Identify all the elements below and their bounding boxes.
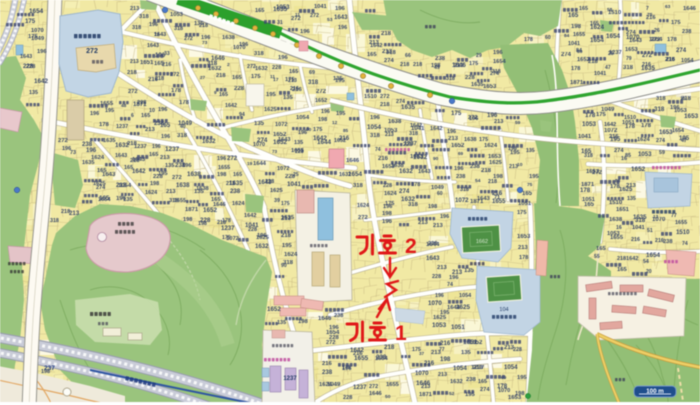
svg-text:1646: 1646	[318, 316, 332, 322]
svg-text:228: 228	[248, 227, 257, 233]
svg-text:175: 175	[517, 210, 527, 216]
svg-text:213: 213	[69, 210, 80, 217]
svg-text:213: 213	[433, 223, 444, 229]
svg-text:1053: 1053	[607, 231, 620, 237]
svg-text:165: 165	[97, 168, 107, 174]
svg-text:228: 228	[403, 142, 413, 148]
svg-text:238: 238	[663, 239, 673, 245]
svg-text:272: 272	[380, 94, 390, 100]
svg-text:178: 178	[524, 37, 533, 43]
svg-text:178: 178	[625, 124, 636, 130]
svg-text:1041: 1041	[287, 181, 302, 188]
svg-text:1053: 1053	[276, 4, 290, 11]
svg-text:318: 318	[139, 14, 149, 20]
svg-text:1041: 1041	[632, 225, 645, 231]
svg-text:198: 198	[428, 204, 437, 210]
svg-text:175: 175	[596, 112, 607, 118]
svg-text:272: 272	[172, 175, 182, 181]
svg-text:52: 52	[449, 391, 455, 397]
svg-text:178: 178	[171, 88, 182, 94]
svg-text:198: 198	[183, 217, 192, 223]
svg-text:228: 228	[272, 65, 281, 71]
svg-text:77: 77	[439, 347, 445, 353]
svg-text:49: 49	[434, 65, 440, 71]
svg-text:238: 238	[175, 162, 186, 169]
svg-text:218: 218	[216, 73, 226, 79]
svg-text:1635: 1635	[401, 104, 416, 111]
svg-text:1871: 1871	[419, 392, 433, 398]
svg-text:1651: 1651	[140, 60, 154, 66]
svg-text:274: 274	[384, 58, 394, 64]
svg-text:195: 195	[529, 174, 540, 180]
svg-text:165: 165	[617, 267, 628, 273]
svg-text:55: 55	[594, 254, 600, 260]
svg-text:1653: 1653	[488, 154, 502, 160]
svg-text:165: 165	[289, 69, 298, 75]
svg-text:216: 216	[353, 351, 363, 357]
svg-text:175: 175	[25, 18, 36, 25]
svg-text:1652: 1652	[203, 207, 218, 214]
svg-text:175: 175	[451, 110, 462, 117]
svg-text:165: 165	[99, 195, 110, 202]
svg-text:1638: 1638	[176, 182, 190, 189]
svg-text:1072: 1072	[604, 128, 618, 134]
svg-text:10: 10	[517, 162, 523, 168]
svg-text:196: 196	[321, 109, 330, 115]
svg-text:196: 196	[37, 49, 47, 55]
svg-text:1654: 1654	[672, 128, 684, 134]
svg-text:228: 228	[23, 63, 34, 70]
svg-text:1041: 1041	[594, 71, 606, 77]
svg-text:165: 165	[522, 191, 533, 197]
svg-text:272: 272	[358, 215, 368, 221]
svg-text:228: 228	[513, 347, 522, 353]
svg-text:196: 196	[335, 6, 346, 12]
svg-text:178: 178	[179, 100, 190, 106]
svg-text:175: 175	[281, 201, 290, 207]
svg-text:1652: 1652	[267, 306, 281, 313]
svg-text:1632: 1632	[255, 66, 268, 72]
svg-text:196: 196	[447, 129, 456, 135]
svg-text:238: 238	[456, 174, 465, 180]
svg-text:1041: 1041	[568, 41, 580, 47]
svg-text:165: 165	[579, 6, 588, 12]
svg-text:1632: 1632	[401, 196, 416, 203]
svg-text:2: 2	[405, 235, 417, 258]
svg-text:196: 196	[161, 134, 170, 140]
svg-text:218: 218	[384, 344, 395, 351]
svg-text:1632: 1632	[339, 172, 351, 178]
svg-text:1632: 1632	[255, 243, 269, 250]
svg-text:1652: 1652	[451, 143, 465, 149]
svg-text:165: 165	[568, 12, 579, 19]
svg-text:272: 272	[468, 115, 478, 121]
svg-text:1642: 1642	[225, 103, 237, 109]
svg-text:1646: 1646	[346, 158, 360, 164]
svg-text:47: 47	[605, 65, 611, 71]
svg-text:1643: 1643	[418, 169, 431, 175]
svg-text:135: 135	[461, 350, 472, 356]
svg-text:228: 228	[465, 75, 475, 81]
svg-text:1654: 1654	[493, 59, 506, 65]
svg-text:196: 196	[493, 50, 503, 56]
svg-text:272: 272	[310, 13, 319, 19]
svg-text:272: 272	[184, 36, 193, 42]
svg-text:1644: 1644	[253, 161, 267, 167]
svg-text:218: 218	[413, 62, 422, 68]
svg-text:1624: 1624	[284, 252, 298, 258]
svg-text:198: 198	[217, 172, 226, 178]
svg-text:318: 318	[656, 96, 666, 102]
svg-text:165: 165	[219, 92, 228, 98]
svg-text:1072: 1072	[277, 166, 289, 172]
svg-text:1655: 1655	[386, 382, 400, 388]
svg-text:27: 27	[200, 75, 206, 80]
svg-text:84: 84	[564, 33, 570, 38]
svg-text:1654: 1654	[606, 33, 621, 40]
svg-text:272: 272	[651, 37, 660, 43]
svg-text:31: 31	[277, 20, 283, 26]
svg-text:1070: 1070	[233, 45, 245, 51]
svg-text:1653: 1653	[625, 47, 638, 53]
svg-text:1054: 1054	[296, 115, 310, 121]
svg-text:175: 175	[385, 201, 394, 207]
svg-text:1871: 1871	[470, 199, 484, 205]
svg-text:318: 318	[370, 133, 380, 139]
svg-text:274: 274	[676, 47, 687, 54]
svg-text:1643: 1643	[426, 255, 440, 262]
svg-text:1054: 1054	[453, 365, 467, 372]
svg-text:2: 2	[227, 62, 230, 68]
svg-text:272: 272	[86, 48, 98, 55]
svg-text:1237: 1237	[116, 124, 128, 130]
svg-text:272: 272	[247, 64, 256, 70]
svg-text:228: 228	[343, 395, 352, 401]
svg-text:135: 135	[194, 189, 205, 195]
svg-text:178: 178	[580, 187, 591, 194]
svg-text:1871: 1871	[570, 80, 584, 86]
svg-text:1510: 1510	[609, 200, 623, 206]
svg-text:1510: 1510	[608, 10, 622, 16]
svg-text:77: 77	[671, 213, 677, 219]
svg-text:175: 175	[313, 127, 322, 133]
svg-text:175: 175	[671, 20, 681, 26]
svg-text:1635: 1635	[281, 215, 295, 221]
svg-text:1624: 1624	[384, 191, 397, 197]
svg-text:218: 218	[617, 256, 626, 262]
svg-text:198: 198	[493, 174, 504, 180]
svg-text:1632: 1632	[450, 379, 463, 385]
svg-text:218: 218	[127, 70, 137, 76]
svg-text:165: 165	[478, 379, 487, 385]
svg-text:1054: 1054	[459, 293, 472, 299]
svg-text:318: 318	[174, 26, 183, 32]
svg-text:216: 216	[665, 57, 676, 63]
svg-text:1652: 1652	[631, 166, 646, 173]
svg-text:26: 26	[654, 28, 660, 34]
svg-text:1638: 1638	[388, 119, 402, 125]
svg-text:1642: 1642	[34, 78, 49, 85]
svg-text:165: 165	[367, 52, 377, 58]
svg-text:1655: 1655	[492, 198, 506, 205]
svg-text:238: 238	[682, 29, 691, 35]
svg-text:1652: 1652	[273, 132, 287, 138]
svg-text:178: 178	[497, 383, 508, 390]
svg-text:1652: 1652	[273, 139, 288, 146]
svg-text:1625: 1625	[456, 304, 471, 311]
svg-text:74: 74	[682, 241, 688, 247]
svg-text:1624: 1624	[357, 203, 369, 209]
svg-text:196: 196	[370, 115, 381, 121]
svg-text:238: 238	[230, 188, 241, 195]
svg-text:196: 196	[217, 156, 226, 162]
svg-text:135: 135	[526, 148, 535, 154]
svg-text:39: 39	[274, 198, 280, 204]
svg-text:198: 198	[41, 369, 50, 375]
svg-text:1653: 1653	[684, 113, 699, 120]
svg-text:178: 178	[571, 66, 580, 72]
svg-text:318: 318	[635, 217, 646, 224]
svg-text:1653: 1653	[382, 164, 395, 170]
svg-text:135: 135	[333, 76, 343, 82]
svg-text:1653: 1653	[483, 84, 497, 90]
svg-text:195: 195	[610, 136, 621, 143]
svg-text:60: 60	[437, 191, 443, 197]
svg-text:53: 53	[327, 17, 333, 23]
svg-text:90: 90	[281, 263, 287, 269]
svg-text:73: 73	[202, 40, 208, 46]
svg-text:196: 196	[440, 214, 449, 220]
svg-text:178: 178	[99, 122, 110, 128]
svg-text:50: 50	[577, 49, 583, 55]
svg-text:218: 218	[281, 233, 292, 239]
svg-text:196: 196	[338, 25, 347, 31]
svg-text:7: 7	[646, 6, 649, 12]
svg-text:66: 66	[405, 53, 411, 59]
svg-text:135: 135	[29, 90, 38, 96]
svg-text:178: 178	[585, 112, 596, 119]
svg-text:1624: 1624	[637, 137, 650, 143]
svg-text:1510: 1510	[624, 115, 636, 121]
svg-text:228: 228	[137, 100, 146, 106]
svg-text:196: 196	[86, 147, 97, 154]
svg-text:196: 196	[382, 219, 393, 225]
svg-text:238: 238	[470, 164, 481, 170]
svg-text:1625: 1625	[489, 160, 503, 166]
svg-text:216: 216	[440, 340, 451, 347]
svg-text:37: 37	[419, 351, 425, 356]
svg-text:1655: 1655	[218, 165, 230, 171]
svg-text:1651: 1651	[616, 207, 630, 213]
svg-text:238: 238	[428, 241, 437, 247]
svg-text:1053: 1053	[432, 322, 447, 329]
svg-text:196: 196	[435, 293, 444, 299]
svg-text:1041: 1041	[578, 134, 592, 140]
svg-text:165: 165	[160, 122, 171, 129]
svg-text:1655: 1655	[573, 32, 585, 38]
svg-text:213: 213	[130, 6, 139, 12]
svg-text:196: 196	[278, 55, 288, 61]
svg-text:213: 213	[160, 155, 170, 161]
svg-text:195: 195	[266, 92, 276, 98]
svg-text:216: 216	[646, 15, 656, 21]
svg-text:1642: 1642	[430, 126, 442, 132]
svg-text:1642: 1642	[370, 43, 382, 49]
svg-text:218: 218	[155, 76, 164, 82]
svg-text:135: 135	[283, 95, 294, 101]
svg-text:1510: 1510	[676, 229, 690, 236]
svg-text:274: 274	[490, 71, 499, 77]
svg-text:196: 196	[670, 105, 680, 111]
svg-text:175: 175	[469, 61, 478, 67]
svg-text:1655: 1655	[675, 220, 687, 226]
svg-text:165: 165	[232, 75, 243, 81]
svg-text:196: 196	[342, 366, 352, 372]
svg-text:79: 79	[626, 56, 632, 62]
svg-text:63: 63	[665, 4, 671, 10]
svg-text:135: 135	[277, 320, 286, 326]
svg-text:195: 195	[336, 111, 345, 117]
svg-text:178: 178	[641, 123, 652, 129]
svg-text:1646: 1646	[683, 6, 697, 12]
svg-text:213: 213	[166, 189, 176, 195]
svg-text:1237: 1237	[353, 384, 367, 391]
svg-text:216: 216	[162, 62, 171, 68]
svg-text:175: 175	[28, 34, 38, 40]
svg-text:1051: 1051	[451, 324, 465, 331]
svg-text:218: 218	[127, 141, 138, 147]
svg-text:1625: 1625	[619, 187, 633, 193]
svg-text:213: 213	[116, 182, 127, 189]
svg-text:1654: 1654	[29, 8, 44, 15]
svg-text:1632: 1632	[399, 168, 413, 175]
svg-text:165: 165	[141, 113, 150, 119]
svg-text:12: 12	[332, 120, 338, 125]
svg-text:1646: 1646	[369, 391, 382, 397]
svg-text:1654: 1654	[326, 330, 340, 336]
svg-text:216: 216	[339, 135, 350, 142]
svg-text:1624: 1624	[319, 382, 333, 388]
svg-text:318: 318	[308, 79, 319, 86]
svg-text:85: 85	[343, 128, 349, 133]
svg-text:1643: 1643	[334, 14, 348, 21]
svg-text:318: 318	[584, 153, 593, 159]
svg-text:1635: 1635	[103, 138, 115, 144]
svg-text:16: 16	[621, 156, 627, 162]
svg-text:213: 213	[494, 119, 503, 125]
svg-text:213: 213	[454, 63, 464, 69]
svg-text:1635: 1635	[471, 82, 483, 88]
svg-text:1652: 1652	[315, 98, 327, 104]
svg-text:74: 74	[447, 282, 453, 288]
svg-text:198: 198	[198, 221, 207, 227]
svg-text:216: 216	[631, 237, 640, 243]
svg-text:1635: 1635	[82, 160, 94, 166]
svg-text:196: 196	[152, 144, 161, 150]
svg-text:272: 272	[326, 340, 335, 346]
svg-text:1643: 1643	[147, 43, 159, 49]
svg-text:198: 198	[150, 181, 159, 187]
svg-text:213: 213	[473, 365, 484, 371]
svg-text:274: 274	[614, 148, 624, 154]
svg-text:165: 165	[255, 8, 264, 14]
svg-text:1643: 1643	[115, 153, 127, 159]
svg-text:1643: 1643	[20, 54, 32, 60]
svg-text:238: 238	[334, 313, 343, 319]
svg-text:165: 165	[149, 152, 158, 158]
svg-text:1632: 1632	[413, 154, 428, 161]
svg-text:238: 238	[466, 377, 477, 383]
svg-text:69: 69	[458, 151, 464, 156]
svg-text:1871: 1871	[185, 207, 199, 213]
svg-text:238: 238	[322, 369, 333, 376]
svg-text:238: 238	[435, 56, 446, 62]
svg-text:13: 13	[653, 214, 659, 219]
svg-text:60: 60	[545, 35, 551, 41]
svg-text:59: 59	[659, 150, 665, 156]
svg-text:6: 6	[131, 113, 134, 119]
svg-text:213: 213	[418, 220, 429, 226]
svg-text:1654: 1654	[646, 252, 661, 259]
svg-text:195: 195	[282, 243, 292, 249]
svg-text:318: 318	[386, 50, 396, 56]
svg-text:228: 228	[234, 86, 245, 92]
svg-text:1041: 1041	[411, 126, 425, 132]
svg-text:318: 318	[623, 65, 634, 71]
svg-text:213: 213	[385, 132, 394, 138]
svg-text:100 m: 100 m	[646, 388, 664, 395]
svg-text:272: 272	[642, 53, 653, 59]
svg-text:19: 19	[247, 161, 253, 166]
svg-text:1510: 1510	[364, 94, 377, 100]
svg-text:69: 69	[309, 70, 315, 76]
svg-text:218: 218	[61, 209, 70, 215]
svg-text:1053: 1053	[638, 151, 652, 158]
svg-text:318: 318	[654, 106, 665, 113]
svg-text:213: 213	[448, 136, 459, 142]
svg-text:216: 216	[322, 361, 333, 367]
svg-text:175: 175	[251, 74, 261, 80]
svg-text:196: 196	[454, 166, 464, 172]
svg-text:175: 175	[222, 235, 231, 241]
svg-text:1054: 1054	[367, 124, 382, 131]
svg-text:1625: 1625	[270, 188, 283, 194]
svg-text:318: 318	[169, 198, 179, 204]
svg-text:195: 195	[517, 375, 527, 381]
svg-text:218: 218	[400, 62, 409, 68]
svg-text:1662: 1662	[476, 239, 488, 245]
svg-text:1053: 1053	[170, 12, 184, 18]
svg-text:213: 213	[145, 127, 156, 133]
svg-text:1625: 1625	[256, 235, 270, 241]
svg-text:218: 218	[199, 23, 208, 29]
svg-text:1653: 1653	[517, 234, 531, 240]
svg-text:40: 40	[180, 124, 186, 130]
svg-text:74: 74	[375, 147, 381, 153]
svg-text:1638: 1638	[464, 137, 476, 143]
svg-text:213: 213	[421, 384, 430, 390]
svg-text:318: 318	[353, 183, 364, 189]
svg-text:54: 54	[475, 178, 481, 184]
svg-text:218: 218	[481, 168, 492, 174]
svg-text:198: 198	[440, 356, 451, 363]
svg-text:196: 196	[149, 22, 158, 28]
svg-text:135: 135	[294, 140, 303, 146]
svg-text:178: 178	[519, 255, 528, 261]
svg-text:1652: 1652	[469, 340, 483, 346]
svg-text:1053: 1053	[582, 121, 597, 128]
svg-text:1070: 1070	[428, 300, 442, 307]
